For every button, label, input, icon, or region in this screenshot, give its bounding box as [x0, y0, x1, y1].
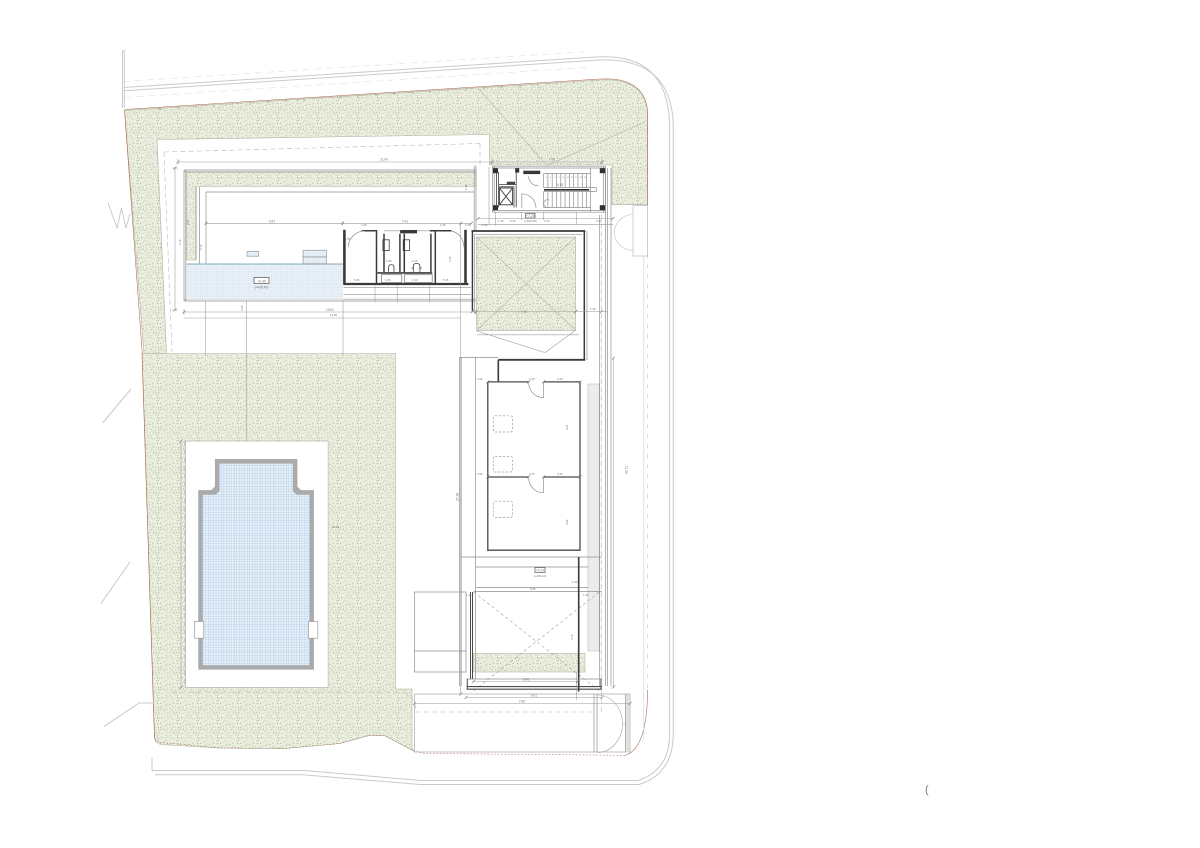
svg-text:14.86: 14.86: [330, 313, 337, 317]
svg-text:6.12: 6.12: [596, 219, 602, 223]
svg-text:4.92: 4.92: [565, 519, 569, 525]
svg-text:(+406.10): (+406.10): [534, 574, 546, 578]
svg-text:1.30: 1.30: [498, 219, 504, 223]
svg-text:0.90: 0.90: [477, 377, 483, 381]
svg-text:0.40: 0.40: [510, 219, 516, 223]
svg-text:4.75: 4.75: [570, 634, 574, 640]
svg-text:4.97: 4.97: [565, 424, 569, 430]
svg-text:4.30: 4.30: [557, 472, 563, 476]
svg-text:3.95: 3.95: [477, 472, 483, 476]
svg-text:1.45: 1.45: [466, 593, 472, 597]
svg-text:7.41: 7.41: [402, 219, 408, 223]
svg-text:9.01: 9.01: [531, 694, 537, 698]
svg-text:2.45: 2.45: [482, 223, 488, 227]
svg-text:+4.10: +4.10: [536, 569, 544, 573]
svg-text:9.87: 9.87: [269, 219, 275, 223]
svg-text:1.05: 1.05: [361, 223, 367, 227]
svg-text:2.40: 2.40: [544, 219, 550, 223]
svg-text:2.40: 2.40: [572, 580, 578, 584]
svg-text:5.26: 5.26: [443, 278, 449, 282]
svg-text:27.28: 27.28: [456, 493, 460, 502]
svg-text:5.12: 5.12: [199, 244, 203, 250]
svg-text:8.46: 8.46: [523, 678, 529, 682]
svg-text:1.00: 1.00: [529, 377, 535, 381]
svg-text:2.42: 2.42: [448, 256, 452, 262]
svg-text:(: (: [925, 784, 929, 796]
svg-text:1.05: 1.05: [440, 223, 446, 227]
svg-text:4.18: 4.18: [557, 183, 563, 187]
svg-text:(+408.40): (+408.40): [255, 286, 269, 290]
svg-text:19.81: 19.81: [326, 308, 334, 312]
svg-text:6.73: 6.73: [178, 239, 182, 245]
svg-text:1.45: 1.45: [583, 593, 589, 597]
svg-text:+0.45: +0.45: [257, 279, 266, 283]
svg-text:0.40: 0.40: [465, 223, 471, 227]
svg-text:1.86: 1.86: [385, 278, 391, 282]
svg-text:7.06: 7.06: [549, 158, 555, 162]
svg-text:21.40: 21.40: [380, 158, 388, 162]
svg-text:7.68: 7.68: [521, 310, 527, 314]
svg-text:1.66: 1.66: [386, 259, 392, 263]
svg-text:2.40: 2.40: [464, 184, 468, 190]
svg-text:7.80: 7.80: [519, 700, 525, 704]
svg-text:5.86: 5.86: [354, 278, 360, 282]
svg-text:2.10: 2.10: [412, 259, 418, 263]
svg-text:1.40: 1.40: [590, 307, 596, 311]
svg-text:1.00: 1.00: [529, 472, 535, 476]
svg-text:+7.25: +7.25: [526, 214, 535, 218]
svg-text:2.40: 2.40: [240, 305, 244, 311]
svg-text:4.30: 4.30: [557, 377, 563, 381]
svg-text:12.99: 12.99: [332, 525, 339, 529]
svg-text:1.86: 1.86: [345, 237, 351, 241]
svg-text:33.71: 33.71: [625, 466, 629, 475]
svg-text:8.95: 8.95: [530, 587, 536, 591]
svg-text:2.10: 2.10: [412, 278, 418, 282]
svg-text:(+409.25): (+409.25): [524, 219, 537, 223]
svg-text:3.85: 3.85: [186, 219, 190, 225]
